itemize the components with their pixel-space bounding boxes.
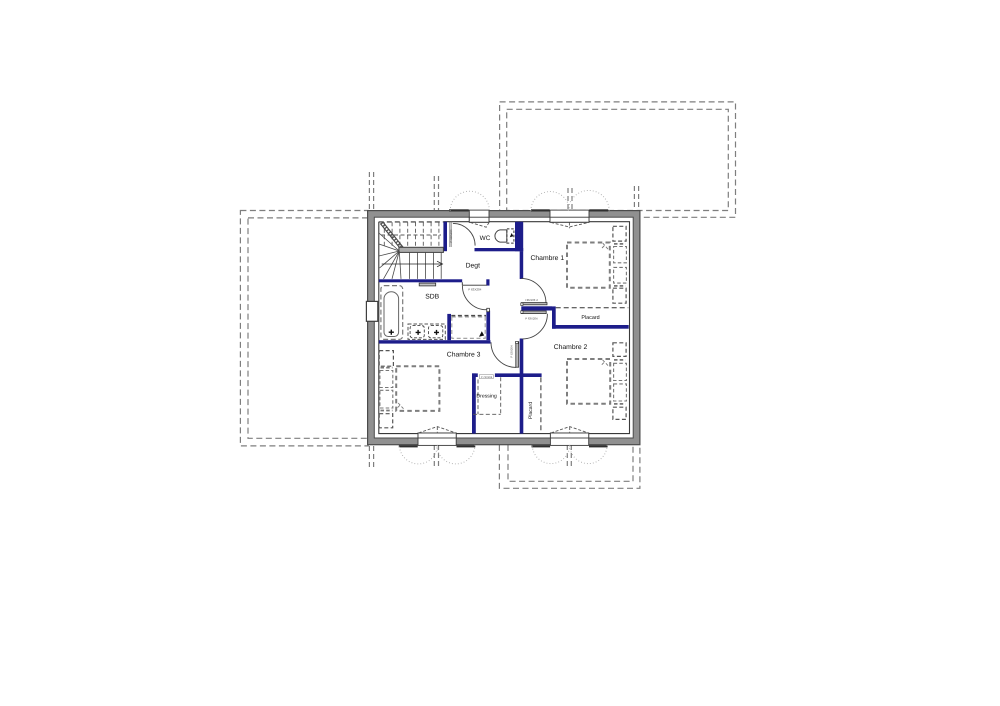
svg-text:P 60X204: P 60X204 bbox=[449, 229, 453, 242]
svg-text:Placard: Placard bbox=[581, 315, 599, 321]
svg-text:P 63X204: P 63X204 bbox=[525, 317, 538, 321]
svg-text:Placard: Placard bbox=[528, 402, 534, 419]
svg-text:Chambre 1: Chambre 1 bbox=[530, 255, 564, 262]
svg-text:P 63X204: P 63X204 bbox=[510, 345, 514, 358]
svg-text:Dressing: Dressing bbox=[476, 393, 497, 399]
svg-text:WC: WC bbox=[480, 235, 491, 242]
svg-text:SDB: SDB bbox=[425, 294, 439, 301]
svg-text:Chambre 2: Chambre 2 bbox=[554, 344, 588, 351]
svg-text:P 63X204: P 63X204 bbox=[468, 288, 481, 292]
svg-text:H02103 d: H02103 d bbox=[526, 298, 539, 302]
svg-text:Chambre 3: Chambre 3 bbox=[447, 352, 481, 359]
svg-text:P 73X204: P 73X204 bbox=[481, 376, 493, 379]
svg-text:Degt: Degt bbox=[466, 263, 480, 270]
